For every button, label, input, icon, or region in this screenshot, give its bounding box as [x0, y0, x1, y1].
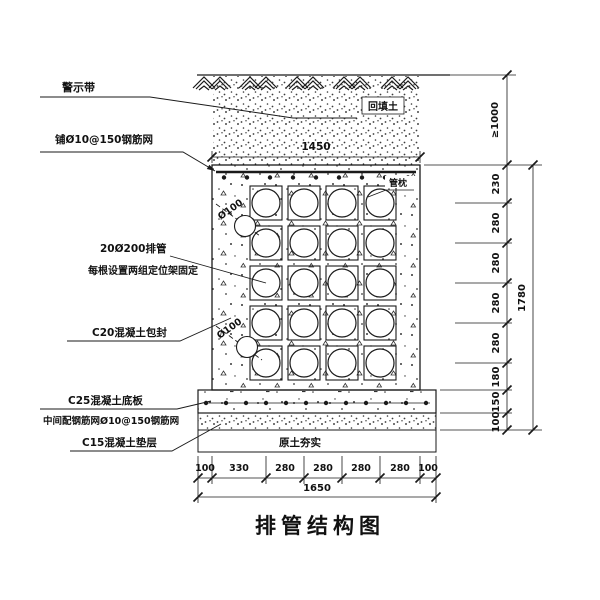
pipe-pillow-label: 管枕 [389, 177, 407, 189]
pipe-circle [366, 309, 394, 337]
pipe-circle [290, 309, 318, 337]
pipe-circle [366, 269, 394, 297]
pipes-count-label: 20Ø200排管 [100, 242, 167, 255]
bottom-seg-dim: 100 [418, 463, 438, 474]
right-seg-dim: 280 [491, 293, 502, 314]
encasement-label: C20混凝土包封 [92, 326, 167, 339]
cushion-label: C15混凝土垫层 [82, 436, 157, 449]
pipe-circle [290, 189, 318, 217]
pipe-circle [328, 349, 356, 377]
rebar-dot [344, 401, 348, 405]
bottom-dimensions: 100 330 280 280 280 280 100 1650 [194, 456, 441, 503]
pipe-circle [328, 229, 356, 257]
warning-tape-label: 警示带 [61, 80, 95, 94]
c25-base-slab [198, 390, 436, 413]
right-seg-dim: 180 [491, 367, 502, 388]
drawing-title: 排管结构图 [255, 514, 385, 538]
phi100-pipe-1 [235, 216, 256, 237]
phi100-pipe-2 [237, 337, 258, 358]
dim-text-1650: 1650 [303, 483, 331, 494]
top-mesh-leader [40, 152, 215, 171]
bottom-seg-dim: 330 [229, 463, 249, 474]
dim-text-1450: 1450 [301, 141, 330, 153]
pipe-structure-drawing-canvas: 回填土 Ø100 Ø100 管枕 原土夯实 警示带 铺Ø10@150钢筋网 [0, 0, 600, 600]
rebar-dot [224, 401, 228, 405]
pipe-circle [252, 189, 280, 217]
rebar-dot [268, 175, 272, 179]
right-dimensions: ≥1000 230 280 280 280 280 180 150 100 17… [424, 71, 542, 435]
pipe-circle [252, 349, 280, 377]
pipe-arrangement-structure-diagram: 回填土 Ø100 Ø100 管枕 原土夯实 警示带 铺Ø10@150钢筋网 [0, 0, 600, 600]
pipe-circle [290, 229, 318, 257]
rebar-dot [291, 175, 295, 179]
rebar-dot [284, 401, 288, 405]
pipe-circle [328, 269, 356, 297]
compacted-soil-label: 原土夯实 [279, 436, 321, 449]
right-seg-dim: 280 [491, 253, 502, 274]
encasement-block: Ø100 Ø100 管枕 [212, 165, 420, 390]
right-seg-dim: 280 [491, 333, 502, 354]
dim-text-1780: 1780 [517, 284, 528, 312]
c15-cushion-layer [198, 413, 436, 430]
rebar-dot [245, 175, 249, 179]
backfill-label: 回填土 [368, 100, 398, 113]
rebar-dot [244, 401, 248, 405]
rebar-dot [324, 401, 328, 405]
pipe-circle [252, 309, 280, 337]
pipe-circle [366, 349, 394, 377]
dim-text-cover-depth: ≥1000 [490, 102, 501, 138]
pipe-circle [290, 269, 318, 297]
rebar-dot [424, 401, 428, 405]
base-slab-label: C25混凝土底板 [68, 394, 143, 407]
right-seg-dim: 150 [491, 392, 502, 413]
pipe-circle [290, 349, 318, 377]
bottom-seg-dim: 280 [275, 463, 295, 474]
rebar-dot [222, 175, 226, 179]
top-mesh-label: 铺Ø10@150钢筋网 [55, 133, 153, 146]
pipe-circle [366, 189, 394, 217]
slab-mesh-label: 中间配钢筋网Ø10@150钢筋网 [43, 415, 179, 427]
rebar-dot [404, 401, 408, 405]
bottom-seg-dim: 280 [351, 463, 371, 474]
rebar-dot [384, 401, 388, 405]
rebar-dot [304, 401, 308, 405]
rebar-dot [360, 175, 364, 179]
pipe-circle [328, 189, 356, 217]
bottom-seg-dim: 280 [313, 463, 333, 474]
rebar-dot [337, 175, 341, 179]
bottom-seg-dim: 280 [390, 463, 410, 474]
right-seg-dim: 100 [491, 412, 502, 433]
foundation-layers: 原土夯实 [198, 390, 436, 452]
pipe-circle [366, 229, 394, 257]
rebar-dot [364, 401, 368, 405]
rebar-dot [314, 175, 318, 179]
right-seg-dim: 280 [491, 213, 502, 234]
pipes-fixing-label: 每根设置两组定位架固定 [88, 264, 198, 277]
pipe-circle [328, 309, 356, 337]
bottom-seg-dim: 100 [195, 463, 215, 474]
right-seg-dim: 230 [491, 174, 502, 195]
rebar-dot [264, 401, 268, 405]
